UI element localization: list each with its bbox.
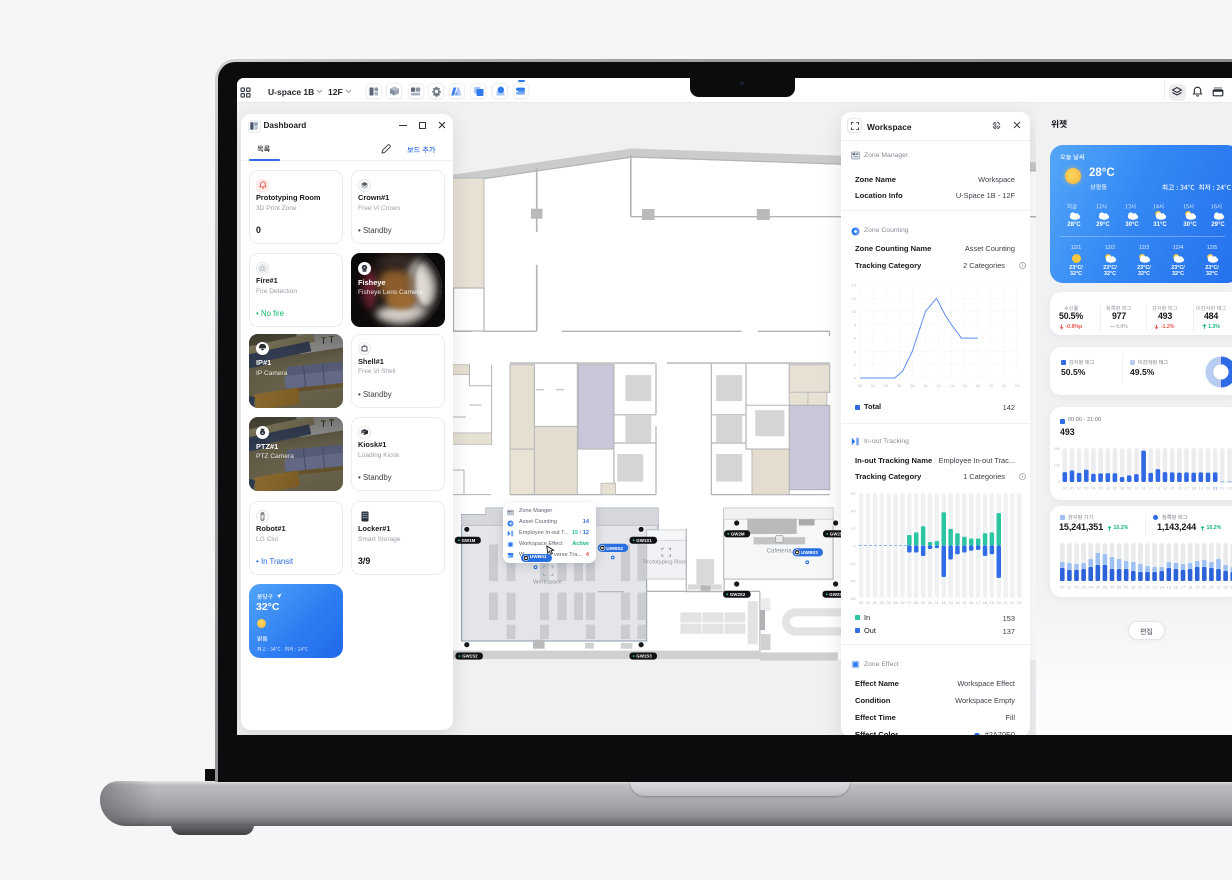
svg-text:12: 12 <box>852 296 856 301</box>
svg-text:14: 14 <box>1163 486 1168 491</box>
svg-text:10: 10 <box>852 309 857 314</box>
svg-text:17: 17 <box>976 600 980 605</box>
svg-text:16: 16 <box>963 383 967 388</box>
svg-text:02: 02 <box>871 383 875 388</box>
svg-text:22: 22 <box>1220 486 1224 491</box>
svg-text:13: 13 <box>948 600 952 605</box>
svg-text:00: 00 <box>1063 486 1068 491</box>
svg-text:6: 6 <box>854 336 856 341</box>
svg-text:22: 22 <box>1010 600 1014 605</box>
svg-text:23: 23 <box>1227 486 1231 491</box>
svg-text:19: 19 <box>1199 486 1203 491</box>
svg-text:23: 23 <box>1223 585 1227 590</box>
svg-text:18: 18 <box>976 383 980 388</box>
svg-text:21: 21 <box>1209 585 1213 590</box>
svg-text:19: 19 <box>1195 585 1199 590</box>
svg-text:-20: -20 <box>850 561 856 566</box>
svg-text:Workspace: Workspace <box>533 580 562 586</box>
svg-text:GW1S2: GW1S2 <box>462 654 478 659</box>
svg-text:0: 0 <box>853 544 856 549</box>
svg-text:12: 12 <box>936 383 940 388</box>
svg-text:17: 17 <box>1184 486 1188 491</box>
svg-text:15: 15 <box>962 600 966 605</box>
svg-text:10: 10 <box>1134 486 1139 491</box>
svg-text:20: 20 <box>851 526 856 531</box>
svg-text:18: 18 <box>1188 585 1192 590</box>
svg-text:100: 100 <box>1054 464 1060 468</box>
svg-text:21: 21 <box>1213 486 1217 491</box>
svg-text:Prototyping Room: Prototyping Room <box>643 560 690 566</box>
svg-text:04: 04 <box>1091 486 1096 491</box>
svg-text:14: 14 <box>852 283 857 288</box>
svg-text:GW1M: GW1M <box>462 538 476 543</box>
svg-text:16: 16 <box>1177 486 1181 491</box>
svg-text:05: 05 <box>1098 486 1102 491</box>
svg-text:07: 07 <box>907 600 911 605</box>
svg-text:-40: -40 <box>850 579 856 584</box>
svg-text:06: 06 <box>900 600 904 605</box>
svg-text:13: 13 <box>1156 486 1160 491</box>
svg-text:14: 14 <box>1160 585 1165 590</box>
svg-text:17: 17 <box>1181 585 1185 590</box>
svg-text:21: 21 <box>1003 600 1007 605</box>
svg-text:40: 40 <box>851 509 856 514</box>
svg-text:16: 16 <box>969 600 973 605</box>
svg-text:18: 18 <box>1192 486 1196 491</box>
svg-text:GW2S2: GW2S2 <box>730 592 746 597</box>
svg-text:20: 20 <box>1206 486 1211 491</box>
svg-text:02: 02 <box>1077 486 1081 491</box>
svg-text:01: 01 <box>866 600 870 605</box>
svg-text:14: 14 <box>955 600 960 605</box>
svg-text:10: 10 <box>1131 585 1136 590</box>
svg-text:07: 07 <box>1110 585 1114 590</box>
svg-text:200: 200 <box>1054 447 1060 451</box>
svg-text:11: 11 <box>935 600 939 605</box>
svg-text:11: 11 <box>1138 585 1142 590</box>
svg-text:20: 20 <box>989 383 994 388</box>
svg-text:8: 8 <box>854 322 856 327</box>
svg-text:12: 12 <box>942 600 946 605</box>
svg-text:06: 06 <box>1106 486 1110 491</box>
svg-text:0: 0 <box>854 376 857 381</box>
svg-text:12: 12 <box>1145 585 1149 590</box>
svg-text:14: 14 <box>949 383 954 388</box>
svg-text:02: 02 <box>873 600 877 605</box>
svg-text:03: 03 <box>1084 486 1088 491</box>
svg-text:20: 20 <box>1202 585 1207 590</box>
svg-text:08: 08 <box>1117 585 1121 590</box>
svg-text:Cafeteria: Cafeteria <box>766 548 792 555</box>
svg-text:GW1S3: GW1S3 <box>636 654 652 659</box>
svg-text:22: 22 <box>1216 585 1220 590</box>
svg-text:15: 15 <box>1167 585 1171 590</box>
svg-text:16: 16 <box>1174 585 1178 590</box>
svg-text:08: 08 <box>910 383 914 388</box>
svg-text:01: 01 <box>1067 585 1071 590</box>
svg-text:13: 13 <box>1152 585 1156 590</box>
svg-text:12: 12 <box>1149 486 1153 491</box>
svg-text:-60: -60 <box>850 596 856 601</box>
svg-text:05: 05 <box>1096 585 1100 590</box>
svg-text:20: 20 <box>997 600 1002 605</box>
svg-text:4: 4 <box>854 349 857 354</box>
svg-text:00: 00 <box>858 383 863 388</box>
svg-text:60: 60 <box>851 491 856 496</box>
svg-text:18: 18 <box>983 600 987 605</box>
svg-text:09: 09 <box>921 600 925 605</box>
svg-text:03: 03 <box>880 600 884 605</box>
svg-text:0: 0 <box>1058 480 1060 484</box>
svg-text:UWB03: UWB03 <box>801 550 818 556</box>
svg-text:04: 04 <box>1089 585 1094 590</box>
svg-text:08: 08 <box>1120 486 1124 491</box>
svg-text:10: 10 <box>928 600 933 605</box>
svg-text:06: 06 <box>1103 585 1107 590</box>
svg-text:01: 01 <box>1070 486 1074 491</box>
svg-text:2: 2 <box>854 362 856 367</box>
svg-text:02: 02 <box>1074 585 1078 590</box>
svg-text:10: 10 <box>923 383 928 388</box>
svg-text:03: 03 <box>1081 585 1085 590</box>
svg-text:07: 07 <box>1113 486 1117 491</box>
svg-text:22: 22 <box>1002 383 1006 388</box>
svg-text:06: 06 <box>897 383 901 388</box>
svg-text:19: 19 <box>990 600 994 605</box>
svg-text:04: 04 <box>887 600 892 605</box>
svg-text:09: 09 <box>1124 585 1128 590</box>
svg-text:15: 15 <box>1170 486 1174 491</box>
svg-text:00: 00 <box>1060 585 1065 590</box>
svg-text:GW1S1: GW1S1 <box>636 538 652 543</box>
svg-text:UWB02: UWB02 <box>606 546 623 552</box>
svg-text:00: 00 <box>859 600 864 605</box>
svg-text:05: 05 <box>893 600 897 605</box>
svg-text:23: 23 <box>1017 600 1021 605</box>
svg-text:24: 24 <box>1015 383 1020 388</box>
svg-text:09: 09 <box>1127 486 1131 491</box>
svg-text:GW2M: GW2M <box>731 532 745 537</box>
svg-text:08: 08 <box>914 600 918 605</box>
svg-text:04: 04 <box>884 383 889 388</box>
svg-text:11: 11 <box>1142 486 1146 491</box>
